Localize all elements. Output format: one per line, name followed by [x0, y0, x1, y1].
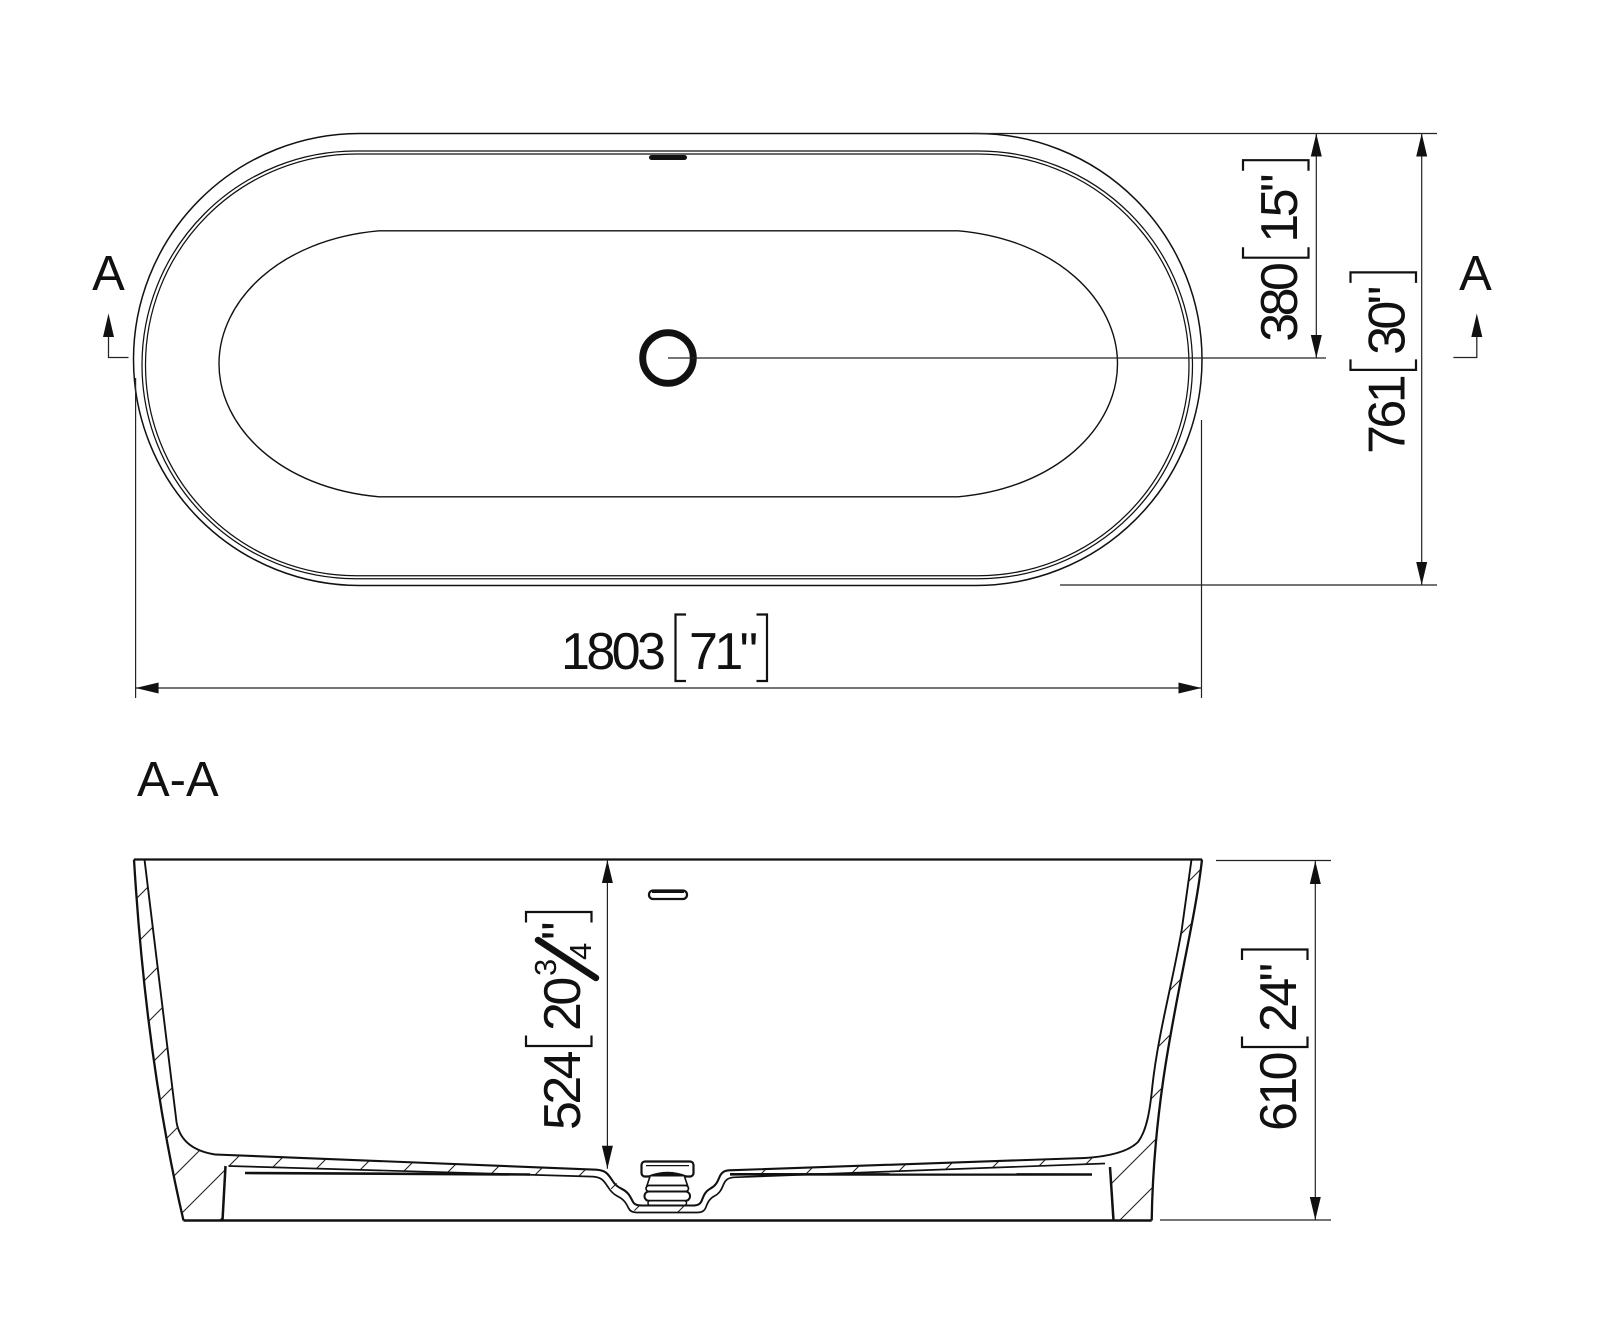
svg-text:30": 30" — [1359, 287, 1417, 355]
svg-text:20: 20 — [534, 979, 592, 1031]
svg-text:1803: 1803 — [561, 623, 664, 681]
svg-text:761: 761 — [1359, 376, 1417, 454]
svg-text:380: 380 — [1251, 264, 1309, 342]
svg-text:3: 3 — [528, 960, 563, 976]
svg-text:": " — [532, 923, 590, 940]
svg-text:524: 524 — [534, 1051, 592, 1130]
svg-text:A: A — [92, 247, 125, 301]
svg-text:71": 71" — [689, 623, 757, 681]
svg-text:15": 15" — [1251, 175, 1309, 243]
svg-text:4: 4 — [563, 943, 598, 960]
svg-text:24": 24" — [1250, 964, 1308, 1032]
svg-text:A: A — [1459, 247, 1492, 301]
svg-text:A-A: A-A — [137, 753, 219, 807]
svg-text:610: 610 — [1250, 1053, 1308, 1131]
